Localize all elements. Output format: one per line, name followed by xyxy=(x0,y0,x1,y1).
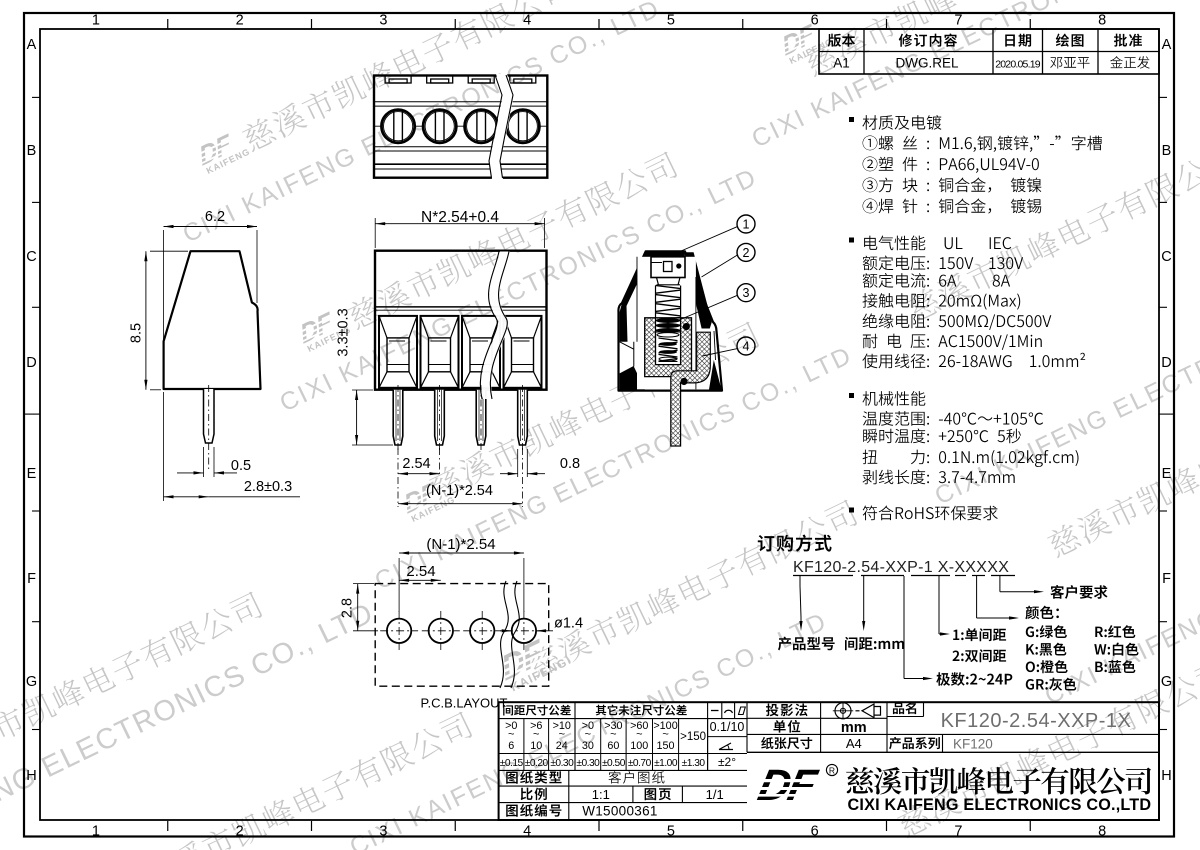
svg-text:2: 2 xyxy=(236,824,244,840)
svg-text:KF120-2.54-XXP-1 X-XXXXX: KF120-2.54-XXP-1 X-XXXXX xyxy=(793,559,1009,576)
svg-text:±0.30: ±0.30 xyxy=(550,758,574,769)
svg-text:~: ~ xyxy=(610,729,616,741)
svg-text:(N-1)*2.54: (N-1)*2.54 xyxy=(426,483,493,499)
svg-text:7: 7 xyxy=(954,824,962,840)
svg-text:>150: >150 xyxy=(680,731,706,743)
svg-text:H: H xyxy=(26,768,36,784)
svg-text:A: A xyxy=(27,37,37,53)
svg-text:1/1: 1/1 xyxy=(706,787,724,802)
svg-text:F: F xyxy=(1162,571,1171,587)
svg-text:2: 2 xyxy=(236,13,244,29)
svg-text:C: C xyxy=(26,249,36,265)
svg-text:P.C.B.LAYOUT: P.C.B.LAYOUT xyxy=(421,696,508,711)
svg-text:D: D xyxy=(26,355,36,371)
svg-text:1:1: 1:1 xyxy=(592,787,610,802)
svg-text:KF120-2.54-XXP-1X: KF120-2.54-XXP-1X xyxy=(941,710,1132,732)
svg-text:CIXI KAIFENG ELECTRONICS CO.,L: CIXI KAIFENG ELECTRONICS CO.,LTD xyxy=(848,796,1152,814)
svg-text:5: 5 xyxy=(667,824,675,840)
svg-text:KAIFENG ELECTRONICS CO., LTD: KAIFENG ELECTRONICS CO., LTD xyxy=(0,597,379,849)
svg-text:DWG.REL: DWG.REL xyxy=(895,56,958,71)
svg-text:±0.15: ±0.15 xyxy=(500,758,524,769)
svg-text:3: 3 xyxy=(743,286,750,300)
svg-text:E: E xyxy=(1162,466,1172,482)
svg-text:~: ~ xyxy=(585,729,591,741)
svg-text:~: ~ xyxy=(662,729,668,741)
svg-text:~: ~ xyxy=(636,729,642,741)
svg-text:3: 3 xyxy=(379,13,387,29)
svg-text:1: 1 xyxy=(92,13,100,29)
svg-text:8: 8 xyxy=(1098,824,1106,840)
svg-text:(N-1)*2.54: (N-1)*2.54 xyxy=(426,536,495,553)
svg-text:KF120: KF120 xyxy=(953,737,993,752)
svg-text:6: 6 xyxy=(811,824,819,840)
svg-text:A4: A4 xyxy=(846,736,862,751)
svg-text:A: A xyxy=(1162,37,1172,53)
svg-text:1: 1 xyxy=(92,824,100,840)
svg-text:2.54: 2.54 xyxy=(406,563,435,580)
svg-text:7: 7 xyxy=(954,13,962,29)
svg-text:F: F xyxy=(27,571,36,587)
svg-text:R: R xyxy=(829,765,835,775)
svg-text:10: 10 xyxy=(530,740,542,752)
svg-text:0.1/10: 0.1/10 xyxy=(710,720,745,734)
svg-text:4: 4 xyxy=(743,340,750,354)
svg-text:0.8: 0.8 xyxy=(560,456,580,472)
svg-text:8.5: 8.5 xyxy=(129,323,145,343)
svg-text:±2°: ±2° xyxy=(718,755,736,769)
svg-text:1: 1 xyxy=(743,218,750,232)
svg-text:8: 8 xyxy=(1098,13,1106,29)
svg-text:4: 4 xyxy=(523,824,531,840)
svg-text:±0.50: ±0.50 xyxy=(602,758,626,769)
svg-text:100: 100 xyxy=(630,740,648,752)
svg-text:2.8: 2.8 xyxy=(340,598,356,618)
svg-text:±1.00: ±1.00 xyxy=(654,758,678,769)
svg-text:B: B xyxy=(1162,143,1172,159)
svg-text:G: G xyxy=(26,674,37,690)
svg-text:3.3±0.3: 3.3±0.3 xyxy=(336,308,352,356)
svg-text:B: B xyxy=(27,143,37,159)
svg-text:2.8±0.3: 2.8±0.3 xyxy=(244,479,292,495)
svg-text:2.54: 2.54 xyxy=(402,456,430,472)
svg-text:60: 60 xyxy=(607,740,619,752)
svg-text:H: H xyxy=(1161,768,1171,784)
svg-text:0.5: 0.5 xyxy=(231,458,251,474)
svg-text:E: E xyxy=(27,466,37,482)
svg-text:150: 150 xyxy=(657,740,675,752)
svg-text:±1.30: ±1.30 xyxy=(682,758,706,769)
svg-text:±0.70: ±0.70 xyxy=(628,758,652,769)
svg-text:3: 3 xyxy=(379,824,387,840)
svg-text:±0.20: ±0.20 xyxy=(525,758,549,769)
svg-text:~: ~ xyxy=(533,729,539,741)
svg-text:W15000361: W15000361 xyxy=(582,804,658,819)
svg-text:A1: A1 xyxy=(833,56,850,71)
svg-text:6: 6 xyxy=(811,13,819,29)
svg-text:4: 4 xyxy=(523,13,531,29)
svg-text:5: 5 xyxy=(667,13,675,29)
svg-text:D: D xyxy=(1161,355,1171,371)
svg-text:6: 6 xyxy=(508,740,514,752)
svg-text:±0.30: ±0.30 xyxy=(576,758,600,769)
svg-text:2: 2 xyxy=(743,246,750,260)
svg-text:24: 24 xyxy=(556,740,568,752)
svg-text:30: 30 xyxy=(582,740,594,752)
svg-text:G: G xyxy=(1161,674,1172,690)
svg-text:mm: mm xyxy=(841,720,867,736)
svg-text:CIXI KAIFENG ELECTRONICS CO.,: CIXI KAIFENG ELECTRONICS CO., LTD xyxy=(370,341,856,595)
svg-text:~: ~ xyxy=(508,729,514,741)
svg-text:ø1.4: ø1.4 xyxy=(554,616,583,632)
svg-text:~: ~ xyxy=(559,729,565,741)
svg-text:6.2: 6.2 xyxy=(205,209,225,225)
svg-text:2020.05.19: 2020.05.19 xyxy=(995,59,1041,71)
svg-text:C: C xyxy=(1161,249,1171,265)
svg-text:DF: DF xyxy=(754,761,823,809)
